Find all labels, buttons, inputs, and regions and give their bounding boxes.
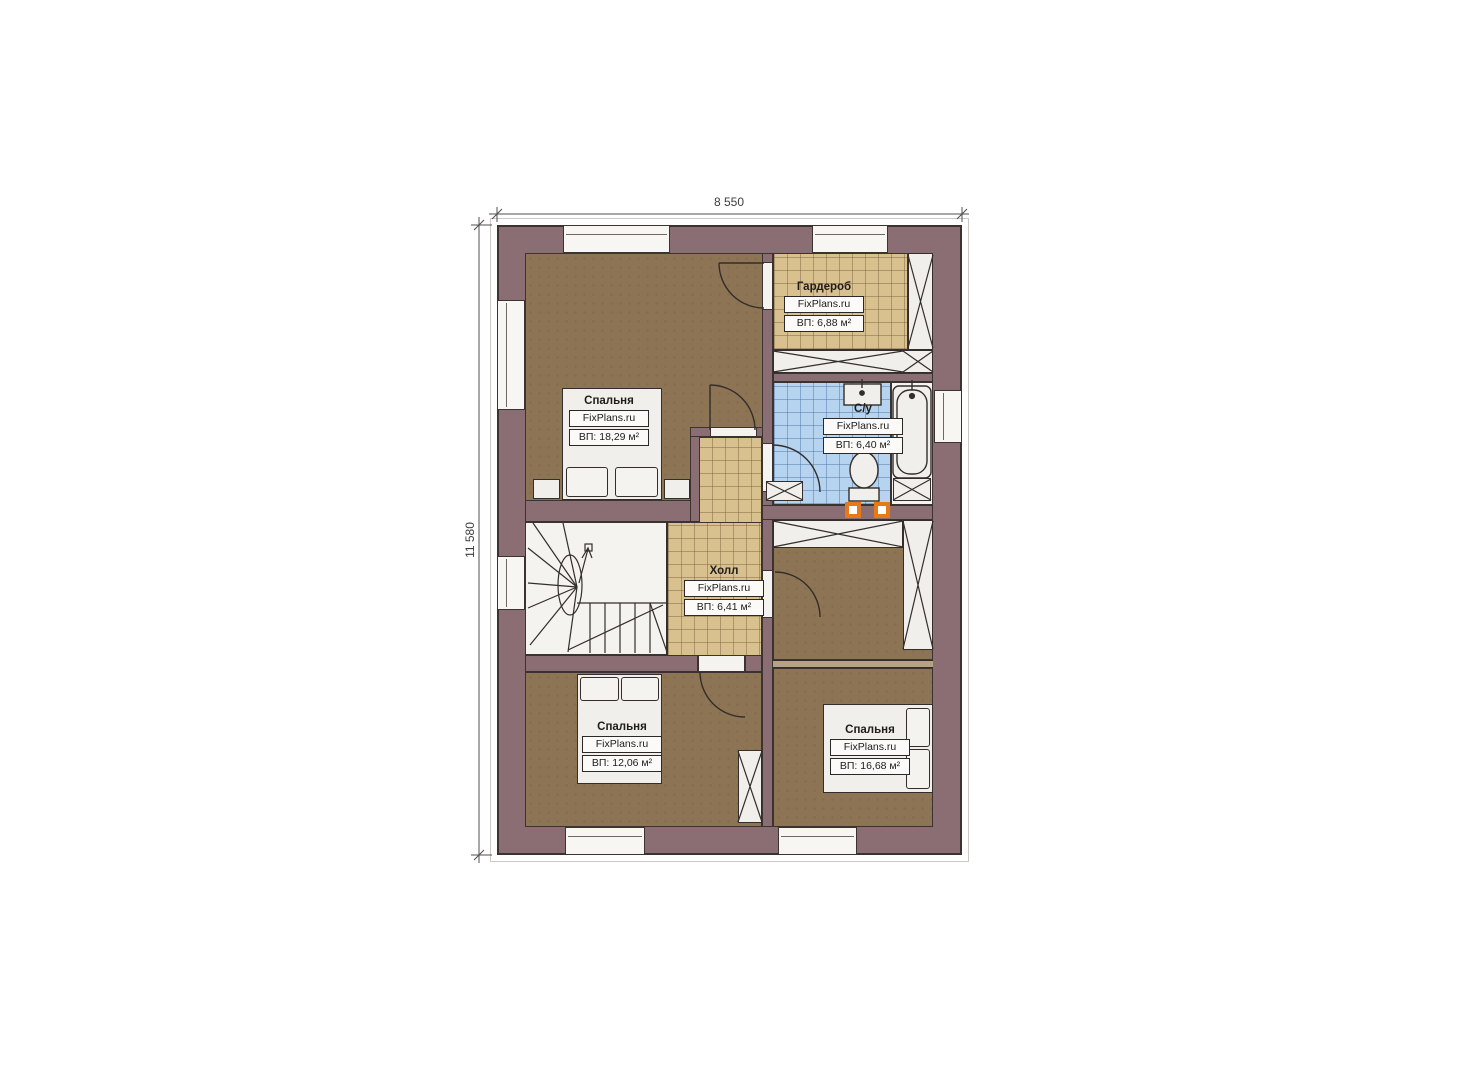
cabinet-bedroom-left xyxy=(738,750,762,823)
door-opening-bedroom-top xyxy=(710,427,757,437)
dimension-width: 8 550 xyxy=(697,195,761,209)
room-name: Спальня xyxy=(561,395,657,408)
heating-marker xyxy=(874,502,890,518)
partition-central-vertical xyxy=(762,253,773,827)
window-north-right xyxy=(812,225,888,253)
brand-watermark: FixPlans.ru xyxy=(784,296,864,313)
label-bedroom-bottom-left: Спальня FixPlans.ru ВП: 12,06 м² xyxy=(574,721,670,772)
partition-hall-south-left xyxy=(525,655,698,672)
wardrobe-cabinet-east xyxy=(908,253,933,350)
window-south-left xyxy=(565,827,645,855)
wardrobe-cabinet-south xyxy=(773,350,933,373)
room-area: ВП: 16,68 м² xyxy=(830,758,910,775)
partition-corridor-west xyxy=(690,427,700,522)
room-name: Спальня xyxy=(574,721,670,734)
cabinet-bedroom-right-north xyxy=(773,520,903,548)
nightstand-right xyxy=(664,479,690,499)
room-area: ВП: 18,29 м² xyxy=(569,429,649,446)
bathroom-cabinet-left xyxy=(766,481,803,501)
staircase-area xyxy=(525,522,667,655)
window-east-bathroom xyxy=(934,390,962,443)
pillow xyxy=(621,677,659,701)
label-bathroom: С/у FixPlans.ru ВП: 6,40 м² xyxy=(815,403,911,454)
label-hall: Холл FixPlans.ru ВП: 6,41 м² xyxy=(676,565,772,616)
room-area: ВП: 6,41 м² xyxy=(684,599,764,616)
room-name: Спальня xyxy=(822,724,918,737)
dimension-height: 11 580 xyxy=(463,508,477,572)
brand-watermark: FixPlans.ru xyxy=(823,418,903,435)
room-area: ВП: 6,40 м² xyxy=(823,437,903,454)
partition-corridor-north-left xyxy=(690,427,712,437)
partition-bedroom-top-south xyxy=(525,500,692,522)
ceiling-beam-line xyxy=(773,660,933,668)
window-west-stairs xyxy=(497,556,525,610)
room-name: С/у xyxy=(815,403,911,416)
partition-bathroom-north xyxy=(773,373,933,382)
room-name: Холл xyxy=(676,565,772,578)
brand-watermark: FixPlans.ru xyxy=(582,736,662,753)
hall-corridor-floor xyxy=(698,437,762,527)
floor-plan: 8 550 11 580 Спальня FixPlans.ru ВП: 18,… xyxy=(0,0,1473,1080)
door-opening-wardrobe xyxy=(762,262,773,310)
heating-marker xyxy=(845,502,861,518)
pillow xyxy=(580,677,619,701)
door-opening-bedroom-left xyxy=(698,655,745,672)
label-bedroom-bottom-right: Спальня FixPlans.ru ВП: 16,68 м² xyxy=(822,724,918,775)
room-area: ВП: 12,06 м² xyxy=(582,755,662,772)
nightstand-left xyxy=(533,479,560,499)
label-wardrobe: Гардероб FixPlans.ru ВП: 6,88 м² xyxy=(776,281,872,332)
brand-watermark: FixPlans.ru xyxy=(684,580,764,597)
room-name: Гардероб xyxy=(776,281,872,294)
window-west-bedroom xyxy=(497,300,525,410)
label-bedroom-top: Спальня FixPlans.ru ВП: 18,29 м² xyxy=(561,395,657,446)
room-area: ВП: 6,88 м² xyxy=(784,315,864,332)
brand-watermark: FixPlans.ru xyxy=(830,739,910,756)
brand-watermark: FixPlans.ru xyxy=(569,410,649,427)
pillow xyxy=(566,467,608,497)
bathroom-cabinet-under-tub xyxy=(893,478,931,501)
pillow xyxy=(615,467,658,497)
partition-hall-south-right xyxy=(745,655,762,672)
cabinet-bedroom-right-east xyxy=(903,520,933,650)
window-north-left xyxy=(563,225,670,253)
window-south-right xyxy=(778,827,857,855)
